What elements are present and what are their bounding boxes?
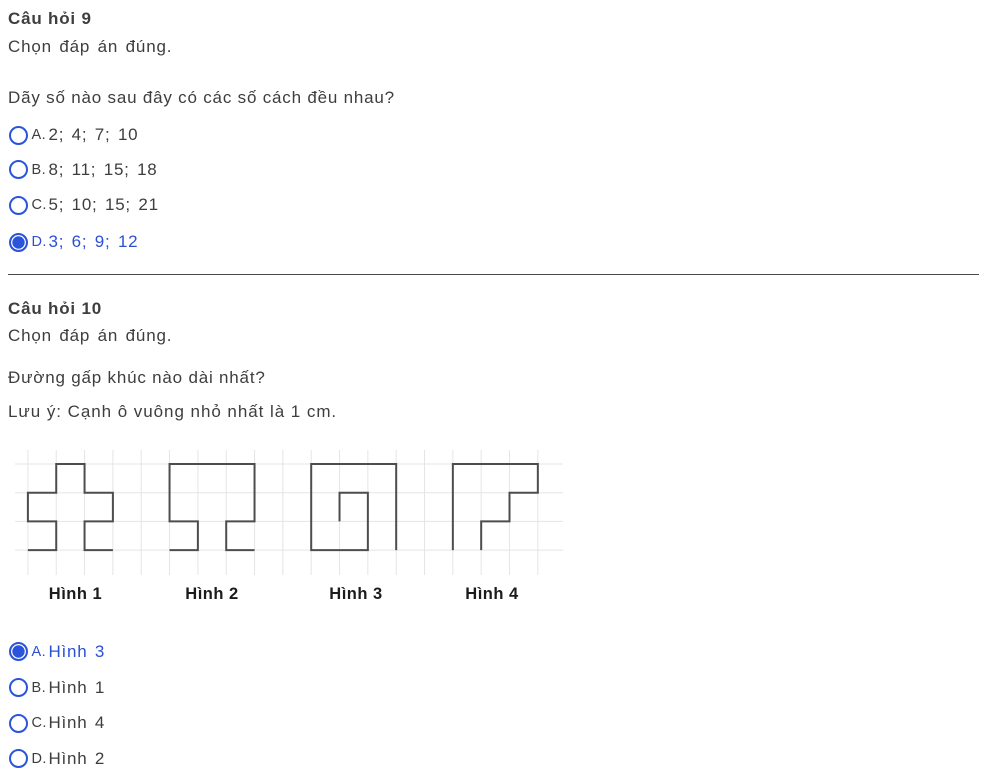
svg-text:Hình 2: Hình 2 [185, 585, 238, 603]
svg-text:Hình 3: Hình 3 [329, 585, 382, 603]
svg-text:Hình 4: Hình 4 [465, 585, 519, 603]
svg-text:Hình 1: Hình 1 [49, 585, 102, 603]
